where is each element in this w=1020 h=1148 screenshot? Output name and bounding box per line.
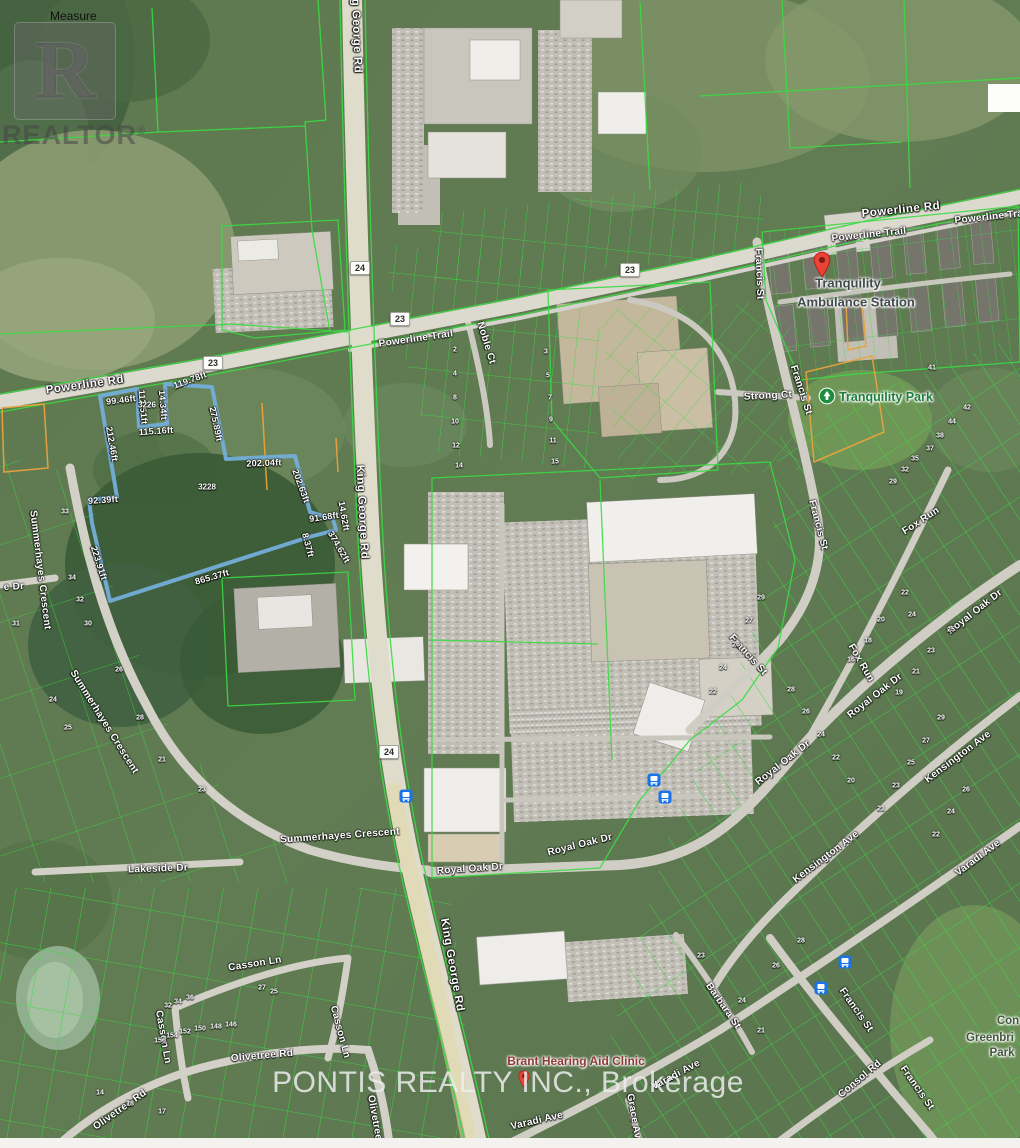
lot-number: 18 xyxy=(126,1101,134,1108)
road-label: e Dr xyxy=(3,581,24,593)
lot-number: 23 xyxy=(697,953,705,960)
lot-number: 28 xyxy=(797,938,805,945)
measurement-label: 865.37ft xyxy=(194,567,231,586)
road-label: Lakeside Dr xyxy=(128,862,188,875)
measurement-label: 202.04ft xyxy=(246,457,281,468)
measure-tool-label: Measure xyxy=(50,9,97,23)
lot-number: 20 xyxy=(877,617,885,624)
lot-number: 26 xyxy=(962,787,970,794)
ambulance-station-pin[interactable] xyxy=(813,251,832,278)
road-label: Royal Oak Dr xyxy=(546,832,613,859)
lot-number: 23 xyxy=(927,648,935,655)
lot-number: 42 xyxy=(963,405,971,412)
lot-number: 26 xyxy=(772,963,780,970)
lot-number: 20 xyxy=(847,778,855,785)
lot-number: 25 xyxy=(907,760,915,767)
road-label: Olivetree Rd xyxy=(230,1048,293,1064)
corner-park-label-line1[interactable]: Con xyxy=(997,1015,1019,1027)
lot-number: 37 xyxy=(926,446,934,453)
lot-number: 152 xyxy=(179,1029,191,1036)
lot-number: 22 xyxy=(901,590,909,597)
lot-number: 29 xyxy=(889,479,897,486)
ambulance-station-label-line2[interactable]: Ambulance Station xyxy=(797,295,915,310)
road-label: Consol Rd xyxy=(836,1058,883,1100)
road-label: Powerline Rd xyxy=(861,200,941,220)
road-label: Kensington Ave xyxy=(791,829,861,886)
road-label: Francis St xyxy=(837,986,875,1034)
lot-number: 150 xyxy=(194,1026,206,1033)
lot-number: 14 xyxy=(455,463,463,470)
lot-number: 7 xyxy=(548,395,552,402)
corner-ui-fragment xyxy=(988,84,1020,112)
road-label: King George Rd xyxy=(348,0,363,73)
road-label: Summerhayes Crescent xyxy=(27,510,53,630)
lot-number: 27 xyxy=(745,618,753,625)
lot-number: 44 xyxy=(948,419,956,426)
road-label: Powerline Trail xyxy=(831,226,907,245)
road-label: Powerline Trail xyxy=(378,328,454,349)
lot-number: 33 xyxy=(61,509,69,516)
lot-number: 154 xyxy=(166,1033,178,1040)
lot-number: 29 xyxy=(757,595,765,602)
bus-stop-icon[interactable] xyxy=(839,956,852,969)
lot-number: 26 xyxy=(802,709,810,716)
road-label: Summerhayes Crescent xyxy=(280,826,400,845)
road-label: Francis St xyxy=(898,1064,936,1112)
lot-number: 30 xyxy=(84,621,92,628)
lot-number: 21 xyxy=(757,1028,765,1035)
road-label: Kensington Ave xyxy=(923,729,993,786)
lot-number: 25 xyxy=(270,989,278,996)
measurement-label: 115.16ft xyxy=(138,425,173,437)
road-label: Powerline Rd xyxy=(45,374,125,397)
lot-number: 17 xyxy=(158,1109,166,1116)
lot-number: 10 xyxy=(451,419,459,426)
bus-stop-icon[interactable] xyxy=(815,982,828,995)
lot-number: 27 xyxy=(258,985,266,992)
lot-number: 32 xyxy=(901,467,909,474)
measurement-label: 119.78ft xyxy=(172,369,208,390)
road-label: Powerline Trail xyxy=(954,208,1020,227)
road-label: Francis St xyxy=(753,248,766,300)
lot-number: 34 xyxy=(68,575,76,582)
lot-number: 29 xyxy=(937,715,945,722)
lot-number: 22 xyxy=(709,689,717,696)
lot-number: 23 xyxy=(892,783,900,790)
road-label: Royal Oak Dr xyxy=(436,861,503,877)
brokerage-watermark: PONTIS REALTY INC., Brokerage xyxy=(272,1066,744,1100)
lot-number: 24 xyxy=(719,665,727,672)
lot-number: 2 xyxy=(453,347,457,354)
measurement-label: 374.62ft xyxy=(326,529,352,564)
corner-park-label-line3[interactable]: Park xyxy=(990,1047,1015,1059)
lot-number: 14 xyxy=(96,1090,104,1097)
lot-number: 22 xyxy=(832,755,840,762)
road-label: King George Rd xyxy=(438,917,466,1012)
lot-number: 156 xyxy=(154,1038,166,1045)
lot-number: 28 xyxy=(136,715,144,722)
lot-number: 28 xyxy=(787,687,795,694)
highway-shield: 23 xyxy=(620,263,640,277)
lot-number: 4 xyxy=(453,371,457,378)
road-label: Barbara St xyxy=(703,981,743,1031)
road-label: Fox Run xyxy=(900,505,941,537)
lot-number: 24 xyxy=(908,612,916,619)
lot-number: 3 xyxy=(544,349,548,356)
bus-stop-icon[interactable] xyxy=(659,791,672,804)
tranquility-park-marker[interactable] xyxy=(819,388,836,405)
lot-number: 11 xyxy=(549,438,556,445)
lot-number: 36 xyxy=(186,995,194,1002)
lot-number: 25 xyxy=(947,627,955,634)
parcel-id-label: 3226 xyxy=(138,401,156,410)
ambulance-station-label-line1[interactable]: Tranquility xyxy=(815,276,881,291)
realtor-logo-letter: R xyxy=(35,29,96,113)
road-label: Casson Ln xyxy=(228,954,283,973)
lot-number: 26 xyxy=(115,667,123,674)
lot-number: 25 xyxy=(64,725,72,732)
lot-number: 19 xyxy=(895,690,903,697)
road-label: Noble Ct xyxy=(474,321,497,366)
lot-number: 15 xyxy=(551,459,559,466)
road-label: Casson Ln xyxy=(328,1005,353,1060)
highway-shield: 24 xyxy=(379,745,399,759)
lot-number: 21 xyxy=(877,806,885,813)
measurement-label: 8.37ft xyxy=(300,532,316,558)
highway-shield: 23 xyxy=(203,356,223,370)
lot-number: 146 xyxy=(225,1022,237,1029)
measurement-label: 223.91ft xyxy=(89,545,109,581)
road-label: Royal Oak Dr xyxy=(753,738,812,788)
lot-number: 18 xyxy=(864,638,872,645)
registered-trademark-symbol: ® xyxy=(137,125,146,137)
measurement-label: 275.89ft xyxy=(207,406,224,442)
lot-number: 24 xyxy=(817,732,825,739)
parcel-id-label: 3228 xyxy=(198,483,216,492)
lot-number: 31 xyxy=(12,621,20,628)
bottom-white-strip xyxy=(0,1138,1020,1148)
lot-number: 8 xyxy=(453,395,457,402)
label-overlay: Tranquility Ambulance Station Tranquilit… xyxy=(0,0,1020,1148)
lot-number: 32 xyxy=(76,597,84,604)
road-label: Strong Ct xyxy=(744,389,793,403)
lot-number: 9 xyxy=(549,417,553,424)
road-label: Francis St xyxy=(727,632,770,678)
road-label: Varadi Ave xyxy=(953,838,1002,879)
lot-number: 21 xyxy=(158,757,166,764)
road-label: Francis St xyxy=(806,499,830,551)
lot-number: 21 xyxy=(912,669,920,676)
lot-number: 22 xyxy=(932,832,940,839)
measurement-label: 212.46ft xyxy=(104,426,120,462)
measurement-label: 92.39ft xyxy=(88,494,119,506)
lot-number: 148 xyxy=(210,1024,222,1031)
road-label: Varadi Ave xyxy=(510,1110,565,1133)
lot-number: 12 xyxy=(452,443,460,450)
tranquility-park-label[interactable]: Tranquility Park xyxy=(839,390,933,404)
lot-number: 34 xyxy=(174,999,182,1006)
lot-number: 23 xyxy=(198,787,206,794)
measurement-label: 14.34ft xyxy=(157,390,170,421)
measurement-label: 91.68ft xyxy=(308,510,339,524)
measurement-label: 202.63ft xyxy=(290,468,311,504)
road-label: King George Rd xyxy=(354,464,371,559)
road-label: Summerhayes Crescent xyxy=(68,668,141,776)
road-label: Francis St xyxy=(788,364,814,416)
highway-shield: 24 xyxy=(350,261,370,275)
satellite-map[interactable]: Tranquility Ambulance Station Tranquilit… xyxy=(0,0,1020,1148)
lot-number: 26 xyxy=(732,642,740,649)
lot-number: 16 xyxy=(847,657,855,664)
realtor-wordmark: REALTOR® xyxy=(2,120,146,151)
lot-number: 35 xyxy=(911,456,919,463)
lot-number: 24 xyxy=(738,998,746,1005)
corner-park-label-line2[interactable]: Greenbri xyxy=(966,1032,1014,1044)
lot-number: 24 xyxy=(947,809,955,816)
realtor-logo: R xyxy=(14,22,116,120)
lot-number: 32 xyxy=(164,1003,172,1010)
measurement-label: 14.62ft xyxy=(336,500,351,531)
bus-stop-icon[interactable] xyxy=(648,774,661,787)
lot-number: 38 xyxy=(936,433,944,440)
lot-number: 41 xyxy=(928,365,936,372)
lot-number: 27 xyxy=(922,738,930,745)
bus-stop-icon[interactable] xyxy=(400,790,413,803)
highway-shield: 23 xyxy=(390,312,410,326)
lot-number: 24 xyxy=(49,697,57,704)
lot-number: 5 xyxy=(546,373,550,380)
measurement-label: 99.46ft xyxy=(106,393,137,407)
